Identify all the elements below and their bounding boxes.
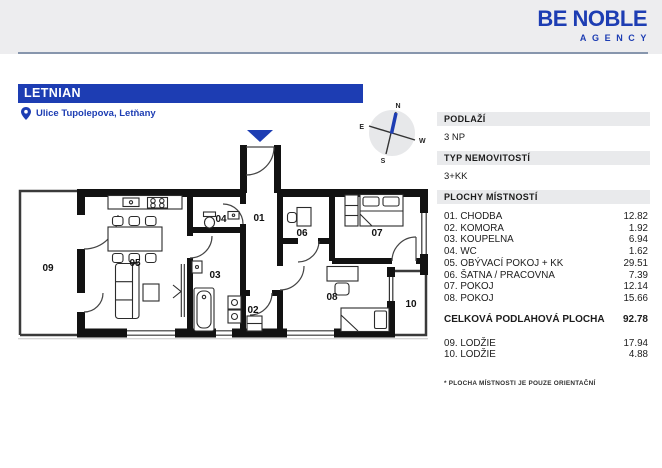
agency-logo-name: BE NOBLE bbox=[537, 7, 647, 31]
door-arcs bbox=[84, 147, 416, 315]
listing-address: Ulice Tupolepova, Letňany bbox=[21, 107, 156, 120]
coffee-table bbox=[143, 284, 159, 301]
room-area: 15.66 bbox=[623, 293, 648, 305]
double-bed bbox=[345, 195, 403, 227]
room-area: 12.82 bbox=[623, 211, 648, 223]
room-name: 05. OBÝVACÍ POKOJ + KK bbox=[444, 258, 563, 270]
rooms-section-header: PLOCHY MÍSTNOSTÍ bbox=[437, 190, 650, 204]
room-area-row: 04. WC 1.62 bbox=[444, 246, 648, 258]
kitchen-counter bbox=[108, 196, 182, 210]
room-label-06: 06 bbox=[296, 228, 308, 239]
interior-walls bbox=[190, 190, 424, 333]
room-name: 06. ŠATNA / PRACOVNA bbox=[444, 270, 555, 282]
room-area-row: 07. POKOJ 12.14 bbox=[444, 281, 648, 293]
listing-title: LETNIAN bbox=[18, 84, 363, 103]
toilet bbox=[204, 212, 240, 229]
room-area-list: 01. CHODBA 12.82 02. KOMORA 1.92 03. KOU… bbox=[437, 211, 650, 305]
single-bed bbox=[341, 308, 389, 332]
room-name: 08. POKOJ bbox=[444, 293, 494, 305]
room-name: 04. WC bbox=[444, 246, 477, 258]
agency-logo-subtitle: AGENCY bbox=[537, 33, 652, 43]
washer-dryer bbox=[228, 296, 241, 323]
listing-title-bar: LETNIAN bbox=[18, 84, 363, 103]
bathroom-sink bbox=[192, 261, 202, 273]
compass-w: W bbox=[419, 138, 426, 145]
room-area-row: 08. POKOJ 15.66 bbox=[444, 293, 648, 305]
desk-08 bbox=[327, 267, 358, 296]
entrance-marker-icon bbox=[247, 130, 273, 142]
type-section-header: TYP NEMOVITOSTÍ bbox=[437, 151, 650, 165]
loggia-09-walls bbox=[20, 191, 77, 335]
balcony-area: 17.94 bbox=[623, 338, 648, 350]
area-disclaimer: * PLOCHA MÍSTNOSTI JE POUZE ORIENTAČNÍ bbox=[444, 380, 650, 387]
info-panel: PODLAŽÍ 3 NP TYP NEMOVITOSTÍ 3+KK PLOCHY… bbox=[437, 112, 650, 387]
total-area-label: CELKOVÁ PODLAHOVÁ PLOCHA bbox=[444, 314, 605, 325]
room-area-row: 03. KOUPELNA 6.94 bbox=[444, 234, 648, 246]
room-area-row: 06. ŠATNA / PRACOVNA 7.39 bbox=[444, 270, 648, 282]
desk-06 bbox=[288, 208, 312, 227]
type-value: 3+KK bbox=[437, 165, 650, 190]
dining-table bbox=[108, 217, 162, 263]
room-label-03: 03 bbox=[209, 270, 221, 281]
windows bbox=[127, 213, 426, 335]
location-pin-icon bbox=[21, 107, 31, 120]
bathtub bbox=[194, 288, 214, 331]
flyer-page: BE NOBLE AGENCY LETNIAN Ulice Tupolepova… bbox=[0, 0, 662, 468]
room-label-05: 05 bbox=[129, 258, 141, 269]
compass-e: E bbox=[359, 124, 364, 131]
compass-icon: N E W S bbox=[359, 103, 426, 165]
room-label-04: 04 bbox=[215, 214, 227, 225]
outer-walls bbox=[77, 145, 428, 337]
balcony-name: 09. LODŽIE bbox=[444, 338, 496, 350]
room-area: 7.39 bbox=[629, 270, 648, 282]
balcony-area-list: 09. LODŽIE 17.94 10. LODŽIE 4.88 bbox=[444, 338, 648, 361]
loggia-10-walls bbox=[391, 271, 426, 335]
balcony-area-row: 10. LODŽIE 4.88 bbox=[444, 349, 648, 361]
sofa bbox=[116, 264, 140, 319]
compass-s: S bbox=[381, 158, 386, 165]
room-label-09: 09 bbox=[42, 263, 54, 274]
room-label-02: 02 bbox=[247, 305, 259, 316]
room-area: 6.94 bbox=[629, 234, 648, 246]
room-label-10: 10 bbox=[405, 299, 417, 310]
compass-n: N bbox=[395, 103, 400, 110]
room-area: 29.51 bbox=[623, 258, 648, 270]
balcony-area-row: 09. LODŽIE 17.94 bbox=[444, 338, 648, 350]
agency-logo: BE NOBLE AGENCY bbox=[537, 7, 647, 43]
room-name: 02. KOMORA bbox=[444, 223, 504, 235]
room-area: 1.62 bbox=[629, 246, 648, 258]
room-name: 07. POKOJ bbox=[444, 281, 494, 293]
room-area-row: 01. CHODBA 12.82 bbox=[444, 211, 648, 223]
room-area: 1.92 bbox=[629, 223, 648, 235]
balcony-area: 4.88 bbox=[629, 349, 648, 361]
room-area: 12.14 bbox=[623, 281, 648, 293]
total-area-value: 92.78 bbox=[623, 314, 648, 325]
room-label-01: 01 bbox=[253, 213, 265, 224]
room-name: 03. KOUPELNA bbox=[444, 234, 514, 246]
room-area-row: 02. KOMORA 1.92 bbox=[444, 223, 648, 235]
tv-unit bbox=[173, 264, 184, 317]
floor-value: 3 NP bbox=[437, 126, 650, 151]
room-area-row: 05. OBÝVACÍ POKOJ + KK 29.51 bbox=[444, 258, 648, 270]
room-label-08: 08 bbox=[326, 292, 338, 303]
header-divider bbox=[18, 52, 648, 54]
storage-shelf bbox=[247, 316, 262, 331]
address-text: Ulice Tupolepova, Letňany bbox=[36, 108, 156, 119]
room-label-07: 07 bbox=[371, 228, 383, 239]
total-area-row: CELKOVÁ PODLAHOVÁ PLOCHA 92.78 bbox=[444, 314, 648, 325]
room-name: 01. CHODBA bbox=[444, 211, 502, 223]
floor-section-header: PODLAŽÍ bbox=[437, 112, 650, 126]
balcony-name: 10. LODŽIE bbox=[444, 349, 496, 361]
